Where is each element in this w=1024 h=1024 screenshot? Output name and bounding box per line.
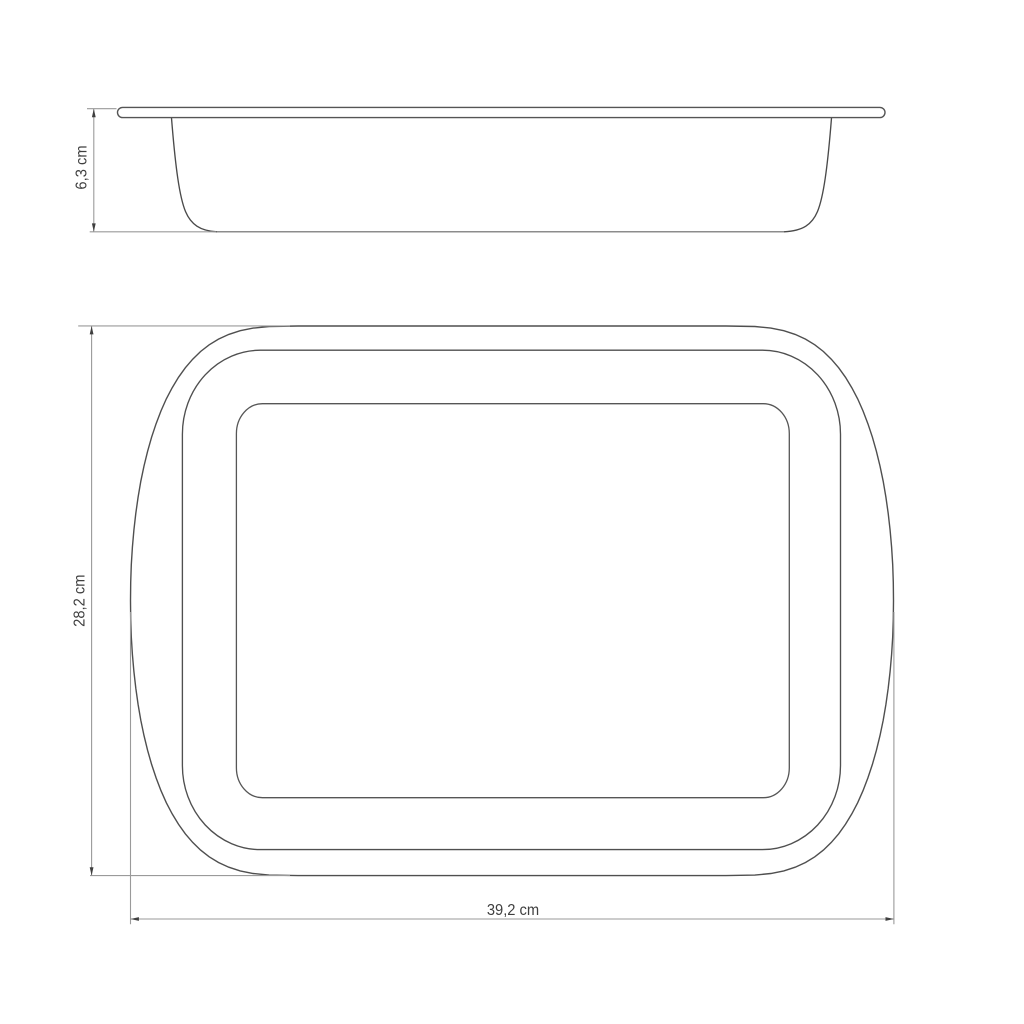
- svg-text:39,2 cm: 39,2 cm: [487, 901, 539, 919]
- svg-text:6,3 cm: 6,3 cm: [73, 145, 91, 189]
- svg-text:28,2 cm: 28,2 cm: [71, 575, 89, 627]
